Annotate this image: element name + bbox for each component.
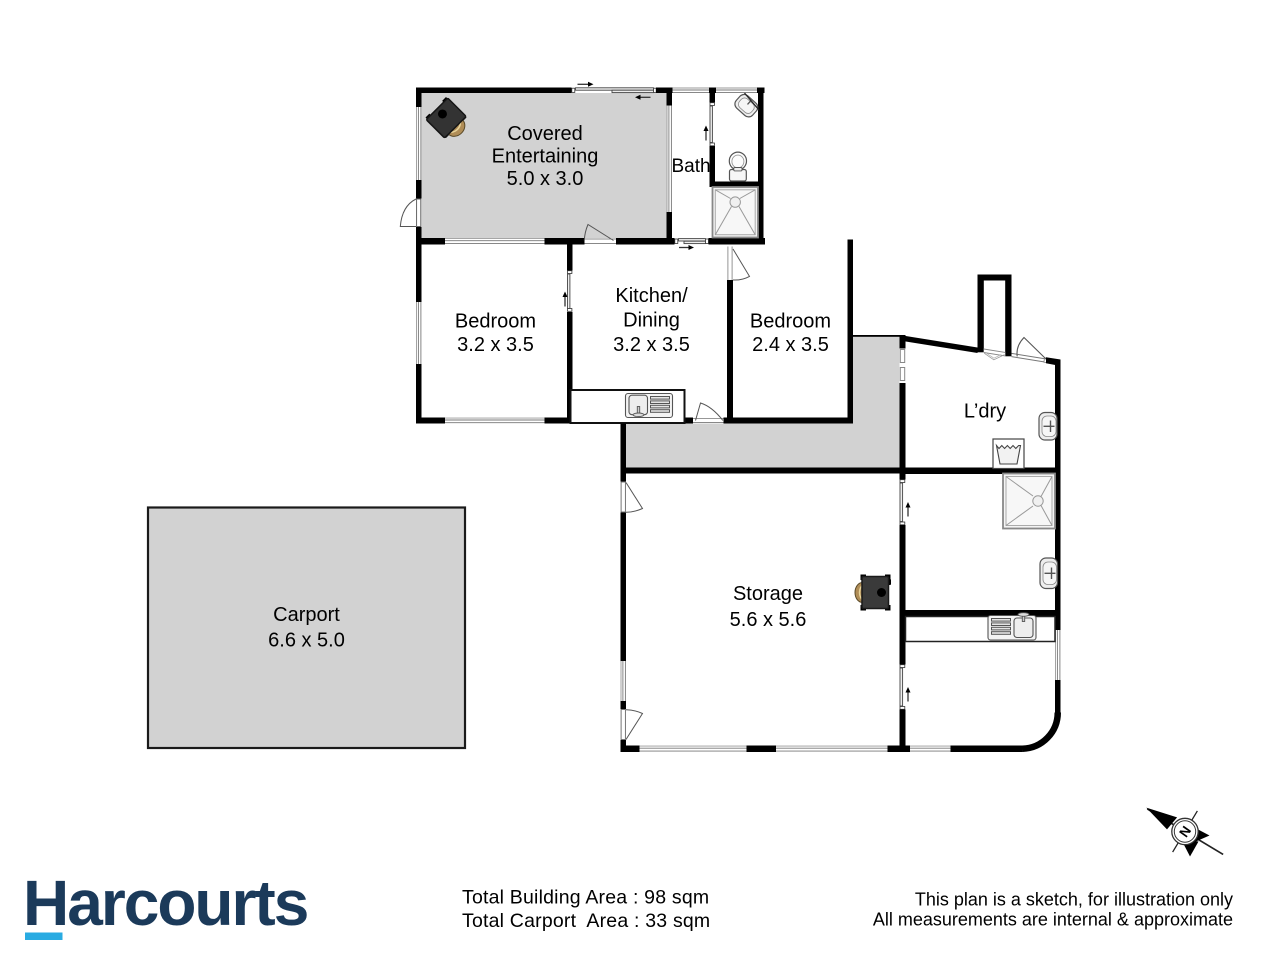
svg-text:5.6 x 5.6: 5.6 x 5.6 [730, 609, 807, 631]
svg-text:6.6 x 5.0: 6.6 x 5.0 [268, 630, 345, 652]
svg-text:Carport: Carport [273, 604, 340, 626]
svg-text:Kitchen/: Kitchen/ [615, 285, 688, 307]
svg-text:3.2 x 3.5: 3.2 x 3.5 [613, 334, 690, 356]
svg-text:5.0 x 3.0: 5.0 x 3.0 [507, 168, 584, 190]
svg-text:All measurements are internal: All measurements are internal & approxim… [873, 910, 1233, 930]
svg-text:This plan is a sketch, for ill: This plan is a sketch, for illustration … [915, 890, 1233, 910]
svg-text:2.4 x 3.5: 2.4 x 3.5 [752, 334, 829, 356]
svg-text:Dining: Dining [623, 310, 680, 332]
svg-text:Covered: Covered [507, 123, 583, 145]
svg-text:L’dry: L’dry [964, 401, 1006, 423]
svg-text:Total Carport Area : 33 sqm: Total Carport Area : 33 sqm [462, 910, 710, 932]
svg-text:Bedroom: Bedroom [455, 311, 536, 333]
svg-text:Bedroom: Bedroom [750, 311, 831, 333]
svg-text:3.2 x 3.5: 3.2 x 3.5 [457, 334, 534, 356]
svg-text:Bath: Bath [671, 156, 710, 177]
svg-text:Storage: Storage [733, 583, 803, 605]
svg-text:Entertaining: Entertaining [492, 146, 599, 168]
svg-text:Harcourts: Harcourts [23, 867, 307, 939]
svg-text:Total Building Area : 98 sqm: Total Building Area : 98 sqm [462, 887, 709, 909]
